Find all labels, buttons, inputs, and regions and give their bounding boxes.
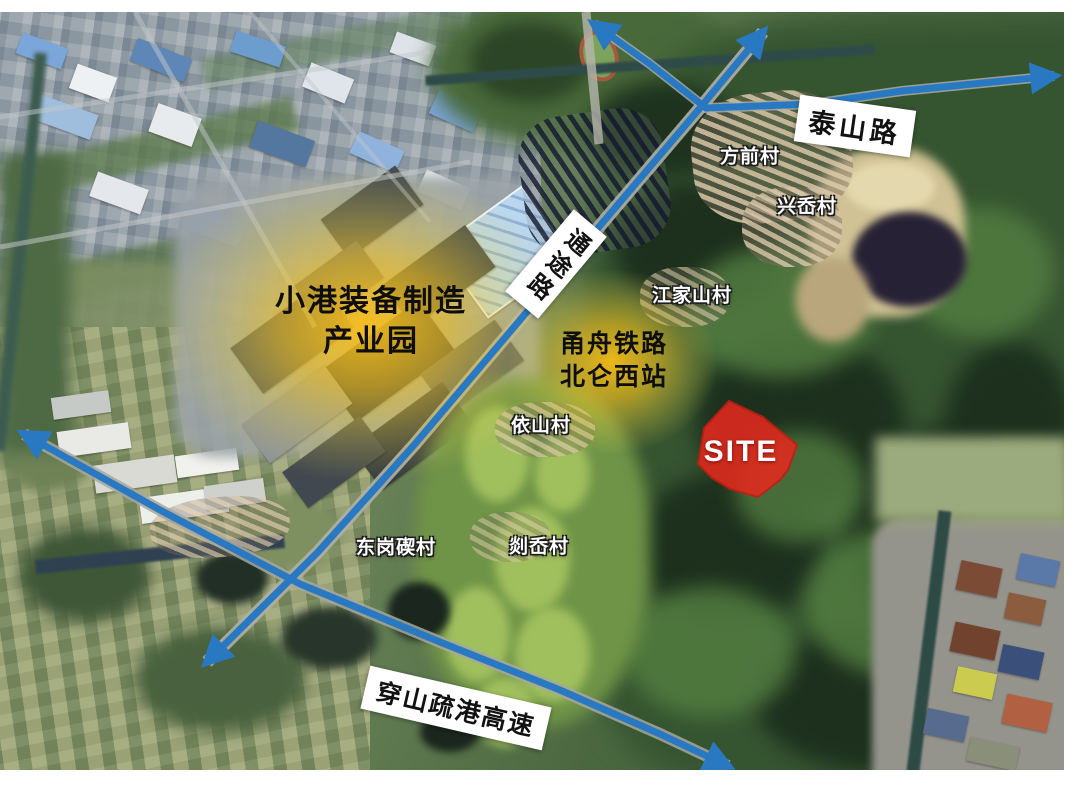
minor-road — [0, 52, 430, 117]
label-railway-station-line1: 甬舟铁路 — [560, 328, 668, 361]
label-railway-station: 甬舟铁路 北仑西站 — [560, 328, 668, 394]
site-label: SITE — [704, 435, 779, 469]
village-label-shanao: 剡岙村 — [509, 532, 569, 559]
road-taishan-pavement — [594, 24, 1054, 108]
village-label-donggangqi: 东岗碶村 — [356, 533, 436, 560]
village-label-jiangjiashan: 江家山村 — [652, 281, 732, 308]
village-label-xingao: 兴岙村 — [777, 192, 837, 219]
road-line-taishan — [594, 24, 1054, 108]
label-industrial-park: 小港装备制造 产业园 — [275, 282, 467, 362]
village-label-fangqian: 方前村 — [720, 142, 780, 169]
village-label-yishan: 依山村 — [511, 411, 571, 438]
label-railway-station-line2: 北仑西站 — [560, 361, 668, 394]
figure-frame: 小港装备制造 产业园 甬舟铁路 北仑西站 SITE 方前村 兴岙村 江家山村 依… — [0, 0, 1080, 792]
label-industrial-park-line2: 产业园 — [275, 322, 467, 362]
label-industrial-park-line1: 小港装备制造 — [275, 282, 467, 322]
satellite-site-location-map: 小港装备制造 产业园 甬舟铁路 北仑西站 SITE 方前村 兴岙村 江家山村 依… — [0, 12, 1064, 770]
